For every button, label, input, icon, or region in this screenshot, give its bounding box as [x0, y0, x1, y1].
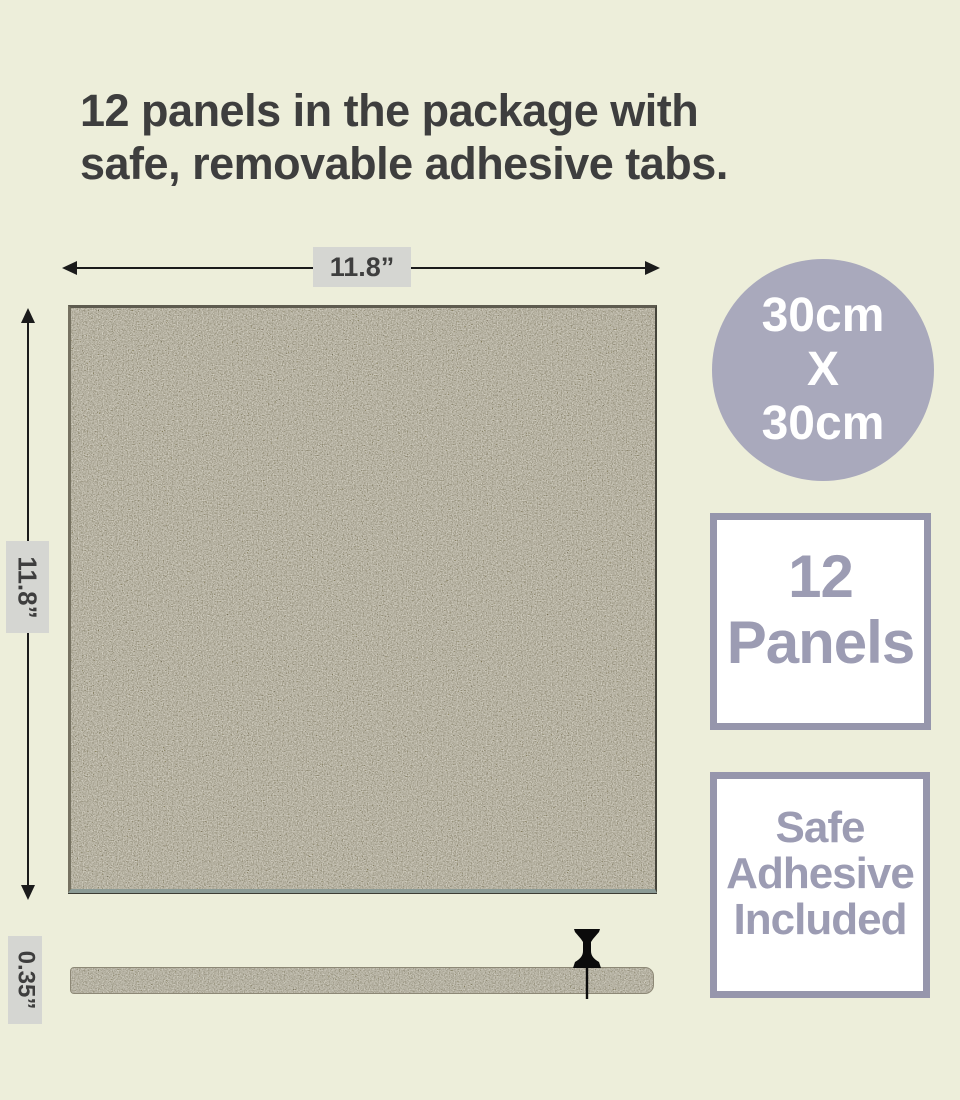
felt-panel-side-view [70, 967, 654, 994]
panel-count-number: 12 [717, 544, 924, 610]
headline: 12 panels in the package with safe, remo… [80, 84, 728, 190]
thickness-value: 0.35” [11, 951, 39, 1010]
arrowhead-right-icon [645, 261, 660, 275]
adhesive-line-3: Included [717, 897, 923, 943]
height-value: 11.8” [12, 556, 43, 618]
pushpin-icon [568, 928, 606, 999]
adhesive-line-2: Adhesive [717, 851, 923, 897]
headline-line-1: 12 panels in the package with [80, 84, 728, 137]
thickness-dimension-label: 0.35” [8, 936, 42, 1024]
panel-count-badge: 12 Panels [710, 513, 931, 730]
width-dimension-label: 11.8” [313, 247, 411, 287]
size-line-3: 30cm [762, 397, 885, 451]
size-line-1: 30cm [762, 289, 885, 343]
height-dimension-label: 11.8” [6, 541, 49, 633]
felt-texture [71, 308, 655, 889]
felt-texture [71, 968, 653, 993]
headline-line-2: safe, removable adhesive tabs. [80, 137, 728, 190]
size-line-2: X [807, 343, 839, 397]
panel-count-word: Panels [717, 610, 924, 676]
arrowhead-down-icon [21, 885, 35, 900]
adhesive-badge: Safe Adhesive Included [710, 772, 930, 998]
size-badge-circle: 30cm X 30cm [712, 259, 934, 481]
felt-panel-front-view [68, 305, 657, 893]
product-infographic: 12 panels in the package with safe, remo… [0, 0, 960, 1100]
adhesive-line-1: Safe [717, 805, 923, 851]
width-value: 11.8” [330, 252, 395, 283]
